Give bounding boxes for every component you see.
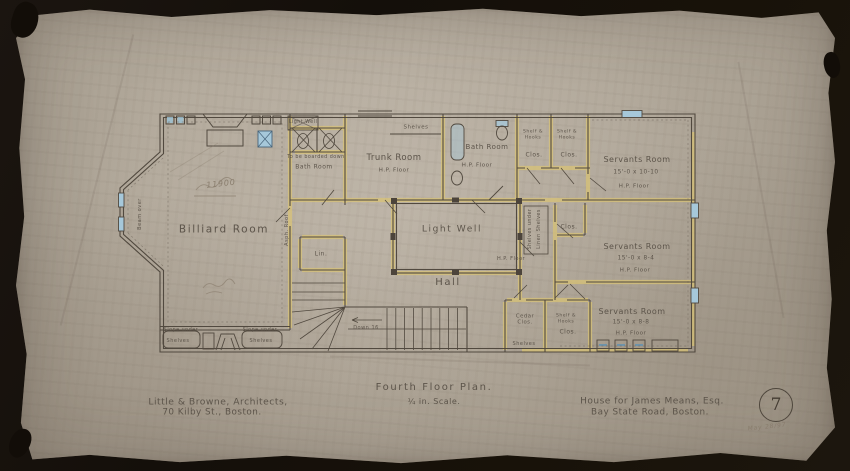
scanned-drawing: Billiard Room Trunk Room H.P. Floor Shel…: [0, 0, 850, 471]
label-beam-over: Beam over: [137, 198, 143, 230]
sheet-number-circle: 7: [759, 388, 793, 422]
label-servants-2: Servants Room: [603, 242, 670, 252]
label-down-16: Down 16: [353, 325, 379, 331]
label-servants-3-dim: 15'-0 x 8-8: [613, 320, 650, 327]
label-slope-under-2: Slope under: [243, 328, 277, 334]
winder-stair: [292, 283, 345, 351]
client-address: Bay State Road, Boston.: [591, 408, 709, 419]
label-light-well-small: Light Well: [289, 120, 318, 126]
light-well-walls: [393, 200, 520, 273]
label-servants-1-dim: 15'-0 x 10-10: [613, 170, 658, 177]
label-servants-2-dim: 15'-0 x 8-4: [618, 256, 655, 263]
light-well-mullions: [391, 198, 523, 276]
label-shelf-hooks-2: Shelf & Hooks: [556, 130, 578, 141]
label-bath-left: Bath Room: [295, 163, 332, 170]
water-tank: [258, 131, 272, 147]
label-asph-roof: Asph. Roof: [284, 214, 290, 246]
label-bath-right: Bath Room: [466, 143, 509, 151]
label-linen-shelves: Linen Shelves: [537, 209, 543, 249]
label-servants-1: Servants Room: [603, 155, 670, 165]
label-servants-3: Servants Room: [598, 307, 665, 317]
bath-right-fixtures: [451, 121, 508, 201]
label-trunk-floor: H.P. Floor: [379, 168, 409, 175]
label-bath-note: To be boarded down: [287, 155, 344, 161]
label-cedar-clos: Cedar Clos.: [511, 314, 539, 327]
label-servants-3-floor: H.P. Floor: [616, 331, 646, 338]
label-cedar-shelves: Shelves: [513, 341, 536, 347]
label-slope-under-1: Slope under: [164, 328, 198, 334]
label-clos-servants2: Clos.: [560, 223, 577, 230]
label-shelves-trunk: Shelves: [404, 125, 429, 132]
label-clos-3: Clos.: [559, 328, 576, 335]
label-lin: Lin.: [315, 250, 328, 257]
client-name: House for James Means, Esq.: [580, 397, 724, 408]
label-corridor-floor: H.P. Floor: [497, 256, 525, 262]
drawing-title: Fourth Floor Plan.: [376, 382, 493, 394]
label-light-well: Light Well: [422, 225, 482, 236]
label-shelves-under: Shelves under: [528, 209, 534, 250]
label-shelf-hooks-3: Shelf & Hooks: [555, 314, 577, 325]
label-shelves-2: Shelves: [250, 338, 273, 344]
label-shelves-1: Shelves: [167, 338, 190, 344]
label-hall: Hall: [435, 277, 461, 289]
architect-name: Little & Browne, Architects,: [148, 396, 287, 407]
label-clos-1: Clos.: [525, 151, 542, 158]
label-billiard-room: Billiard Room: [179, 224, 269, 237]
label-shelf-hooks-1: Shelf & Hooks: [522, 130, 544, 141]
pencil-scribbles: [170, 143, 236, 294]
label-clos-2: Clos.: [560, 151, 577, 158]
label-servants-2-floor: H.P. Floor: [620, 268, 650, 275]
label-bath-right-floor: H.P. Floor: [462, 163, 492, 170]
sheet-number: 7: [771, 395, 782, 415]
label-trunk-room: Trunk Room: [366, 153, 421, 163]
architect-address: 70 Kilby St., Boston.: [162, 408, 261, 419]
drawing-scale: ¼ in. Scale.: [408, 397, 461, 407]
label-servants-1-floor: H.P. Floor: [619, 184, 649, 191]
